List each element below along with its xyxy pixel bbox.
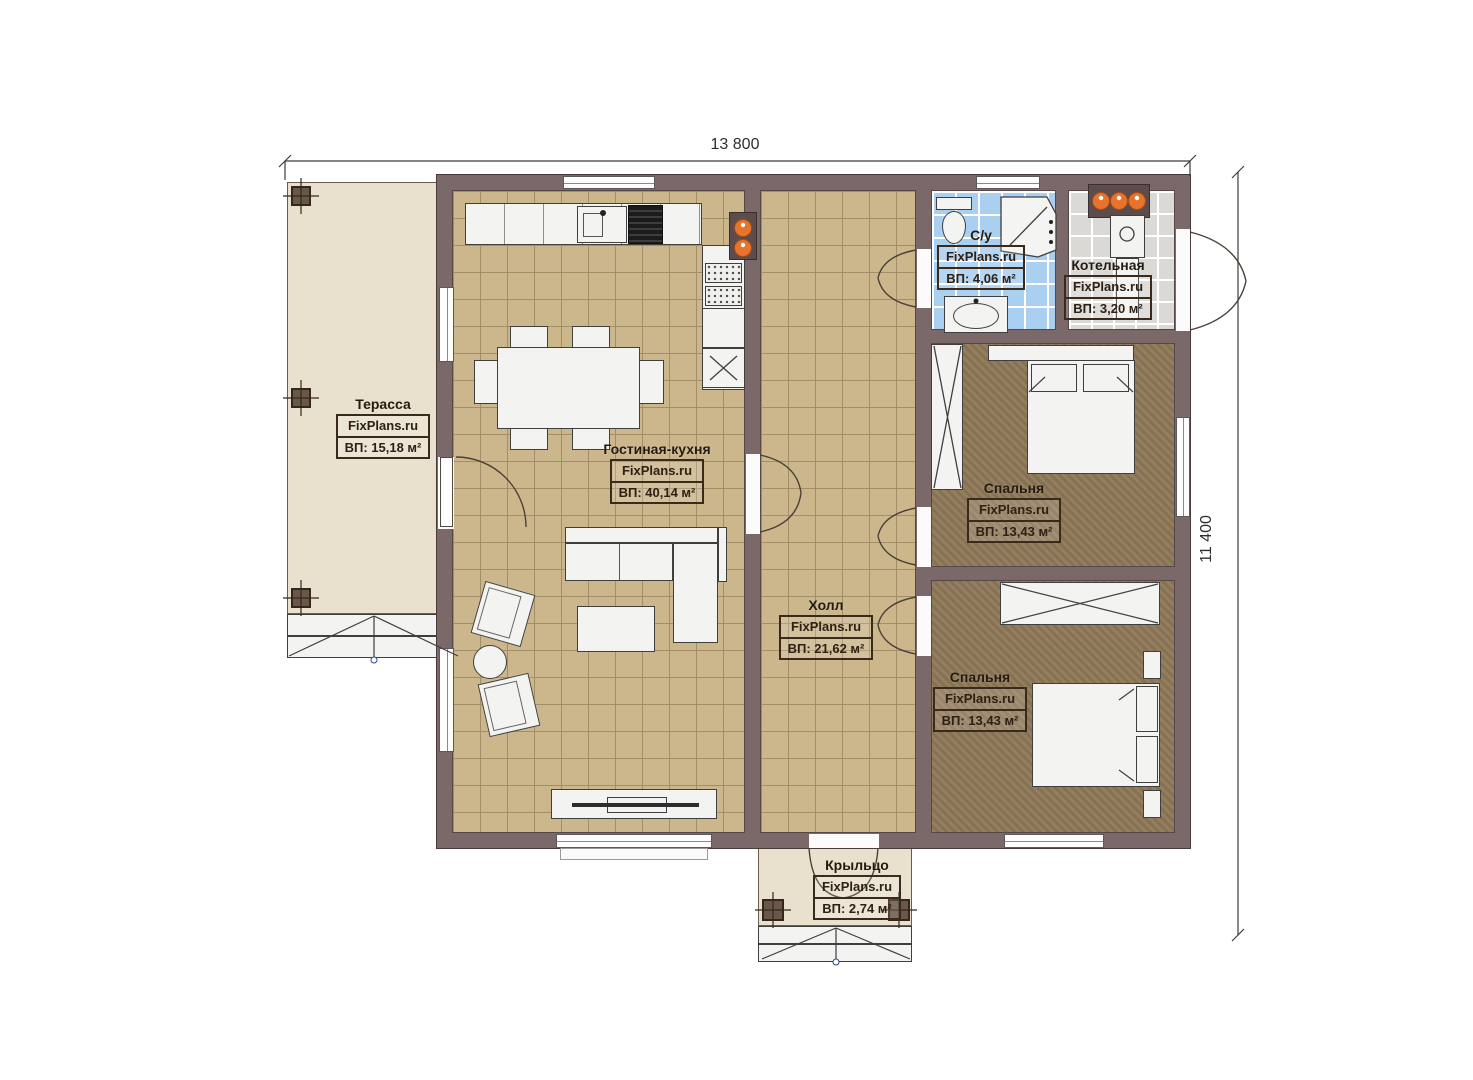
room-name: Гостиная-кухня bbox=[603, 442, 710, 457]
room-label-porch: Крыльцо FixPlans.ru ВП: 2,74 м² bbox=[804, 858, 910, 920]
sink-basin bbox=[583, 213, 603, 237]
terrace-step bbox=[287, 636, 460, 658]
window bbox=[1004, 834, 1104, 848]
pillow bbox=[1083, 364, 1129, 392]
room-area: ВП: 4,06 м² bbox=[939, 269, 1023, 289]
watermark-text: FixPlans.ru bbox=[935, 689, 1026, 711]
porch-post bbox=[762, 899, 784, 921]
headboard-shelf bbox=[988, 345, 1134, 361]
room-label-bedroom-top: Спальня FixPlans.ru ВП: 13,43 м² bbox=[968, 481, 1060, 543]
watermark-text: FixPlans.ru bbox=[815, 877, 899, 899]
room-name: Спальня bbox=[984, 481, 1044, 496]
watermark-text: FixPlans.ru bbox=[939, 247, 1023, 269]
kitchen-cabinet-x bbox=[702, 348, 745, 388]
room-area: ВП: 13,43 м² bbox=[969, 522, 1060, 542]
sofa-chaise bbox=[673, 543, 718, 643]
watermark-text: FixPlans.ru bbox=[781, 617, 872, 639]
nightstand bbox=[1143, 651, 1161, 679]
entrance-door-gap bbox=[809, 834, 879, 848]
room-label-hall: Холл FixPlans.ru ВП: 21,62 м² bbox=[778, 598, 874, 660]
door-gap bbox=[917, 596, 931, 656]
room-info-box: FixPlans.ru ВП: 3,20 м² bbox=[1064, 275, 1152, 320]
wardrobe bbox=[931, 344, 963, 490]
room-info-box: FixPlans.ru ВП: 2,74 м² bbox=[813, 875, 901, 920]
room-label-living-kitchen: Гостиная-кухня FixPlans.ru ВП: 40,14 м² bbox=[592, 442, 722, 504]
coffee-table bbox=[577, 606, 655, 652]
room-name: Терасса bbox=[355, 397, 411, 412]
door-gap bbox=[917, 507, 931, 567]
porch-step bbox=[758, 926, 912, 944]
pillow bbox=[1136, 686, 1158, 732]
watermark-text: FixPlans.ru bbox=[338, 416, 429, 438]
floor-plan: 13 800 11 400 bbox=[0, 0, 1473, 1080]
sofa-seat bbox=[565, 543, 673, 581]
room-label-bedroom-bottom: Спальня FixPlans.ru ВП: 13,43 м² bbox=[934, 670, 1026, 732]
appliance-grid bbox=[705, 263, 742, 283]
dimension-height-label: 11 400 bbox=[1198, 494, 1216, 584]
door-leaf bbox=[440, 457, 453, 527]
dining-table bbox=[497, 347, 640, 429]
terrace-post bbox=[291, 588, 311, 608]
boiler-unit bbox=[1110, 215, 1145, 258]
dimension-width-label: 13 800 bbox=[660, 136, 810, 154]
window-sill bbox=[560, 848, 708, 860]
sofa-armrest bbox=[718, 527, 727, 582]
window bbox=[556, 834, 712, 848]
room-area: ВП: 15,18 м² bbox=[338, 438, 429, 458]
room-label-terrace: Терасса FixPlans.ru ВП: 15,18 м² bbox=[333, 397, 433, 459]
window bbox=[439, 648, 454, 752]
room-info-box: FixPlans.ru ВП: 13,43 м² bbox=[933, 687, 1028, 732]
window bbox=[1176, 417, 1190, 517]
room-label-boiler: Котельная FixPlans.ru ВП: 3,20 м² bbox=[1062, 258, 1154, 320]
terrace-post bbox=[291, 186, 311, 206]
window bbox=[976, 176, 1040, 189]
room-area: ВП: 13,43 м² bbox=[935, 711, 1026, 731]
hob-niche bbox=[729, 212, 757, 260]
armchair-seat bbox=[484, 681, 527, 732]
window bbox=[439, 287, 454, 362]
door-gap bbox=[746, 454, 760, 534]
watermark-text: FixPlans.ru bbox=[969, 500, 1060, 522]
room-area: ВП: 21,62 м² bbox=[781, 639, 872, 659]
room-info-box: FixPlans.ru ВП: 21,62 м² bbox=[779, 615, 874, 660]
toilet-tank bbox=[936, 197, 972, 210]
room-name: Котельная bbox=[1071, 258, 1144, 273]
side-table bbox=[473, 645, 507, 679]
room-area: ВП: 2,74 м² bbox=[815, 899, 899, 919]
room-label-bathroom: С/у FixPlans.ru ВП: 4,06 м² bbox=[936, 228, 1026, 290]
hall-floor bbox=[760, 190, 916, 833]
watermark-text: FixPlans.ru bbox=[1066, 277, 1150, 299]
pillow bbox=[1031, 364, 1077, 392]
room-name: С/у bbox=[970, 228, 992, 243]
window bbox=[563, 176, 655, 189]
door-gap bbox=[917, 249, 931, 308]
watermark-text: FixPlans.ru bbox=[612, 461, 703, 483]
terrace-post bbox=[291, 388, 311, 408]
appliance-grid bbox=[705, 286, 742, 306]
kitchen-stove bbox=[628, 205, 663, 244]
room-name: Крыльцо bbox=[825, 858, 889, 873]
kitchen-cabinet bbox=[702, 308, 745, 348]
bath-sink bbox=[953, 303, 999, 329]
room-info-box: FixPlans.ru ВП: 15,18 м² bbox=[336, 414, 431, 459]
room-area: ВП: 3,20 м² bbox=[1066, 299, 1150, 319]
pillow bbox=[1136, 736, 1158, 783]
terrace-step bbox=[287, 614, 460, 636]
tv bbox=[607, 797, 667, 813]
armchair-seat bbox=[477, 587, 522, 639]
sofa-cushion-divider bbox=[619, 544, 620, 580]
wardrobe bbox=[1000, 582, 1160, 625]
boiler-door-gap bbox=[1176, 229, 1190, 331]
room-name: Спальня bbox=[950, 670, 1010, 685]
porch-step bbox=[758, 944, 912, 962]
nightstand bbox=[1143, 790, 1161, 818]
boiler-niche bbox=[1088, 184, 1150, 218]
room-name: Холл bbox=[808, 598, 843, 613]
kitchen-sink bbox=[577, 206, 627, 243]
sofa-back bbox=[565, 527, 718, 543]
chair bbox=[638, 360, 664, 404]
room-info-box: FixPlans.ru ВП: 40,14 м² bbox=[610, 459, 705, 504]
room-area: ВП: 40,14 м² bbox=[612, 483, 703, 503]
room-info-box: FixPlans.ru ВП: 4,06 м² bbox=[937, 245, 1025, 290]
room-info-box: FixPlans.ru ВП: 13,43 м² bbox=[967, 498, 1062, 543]
